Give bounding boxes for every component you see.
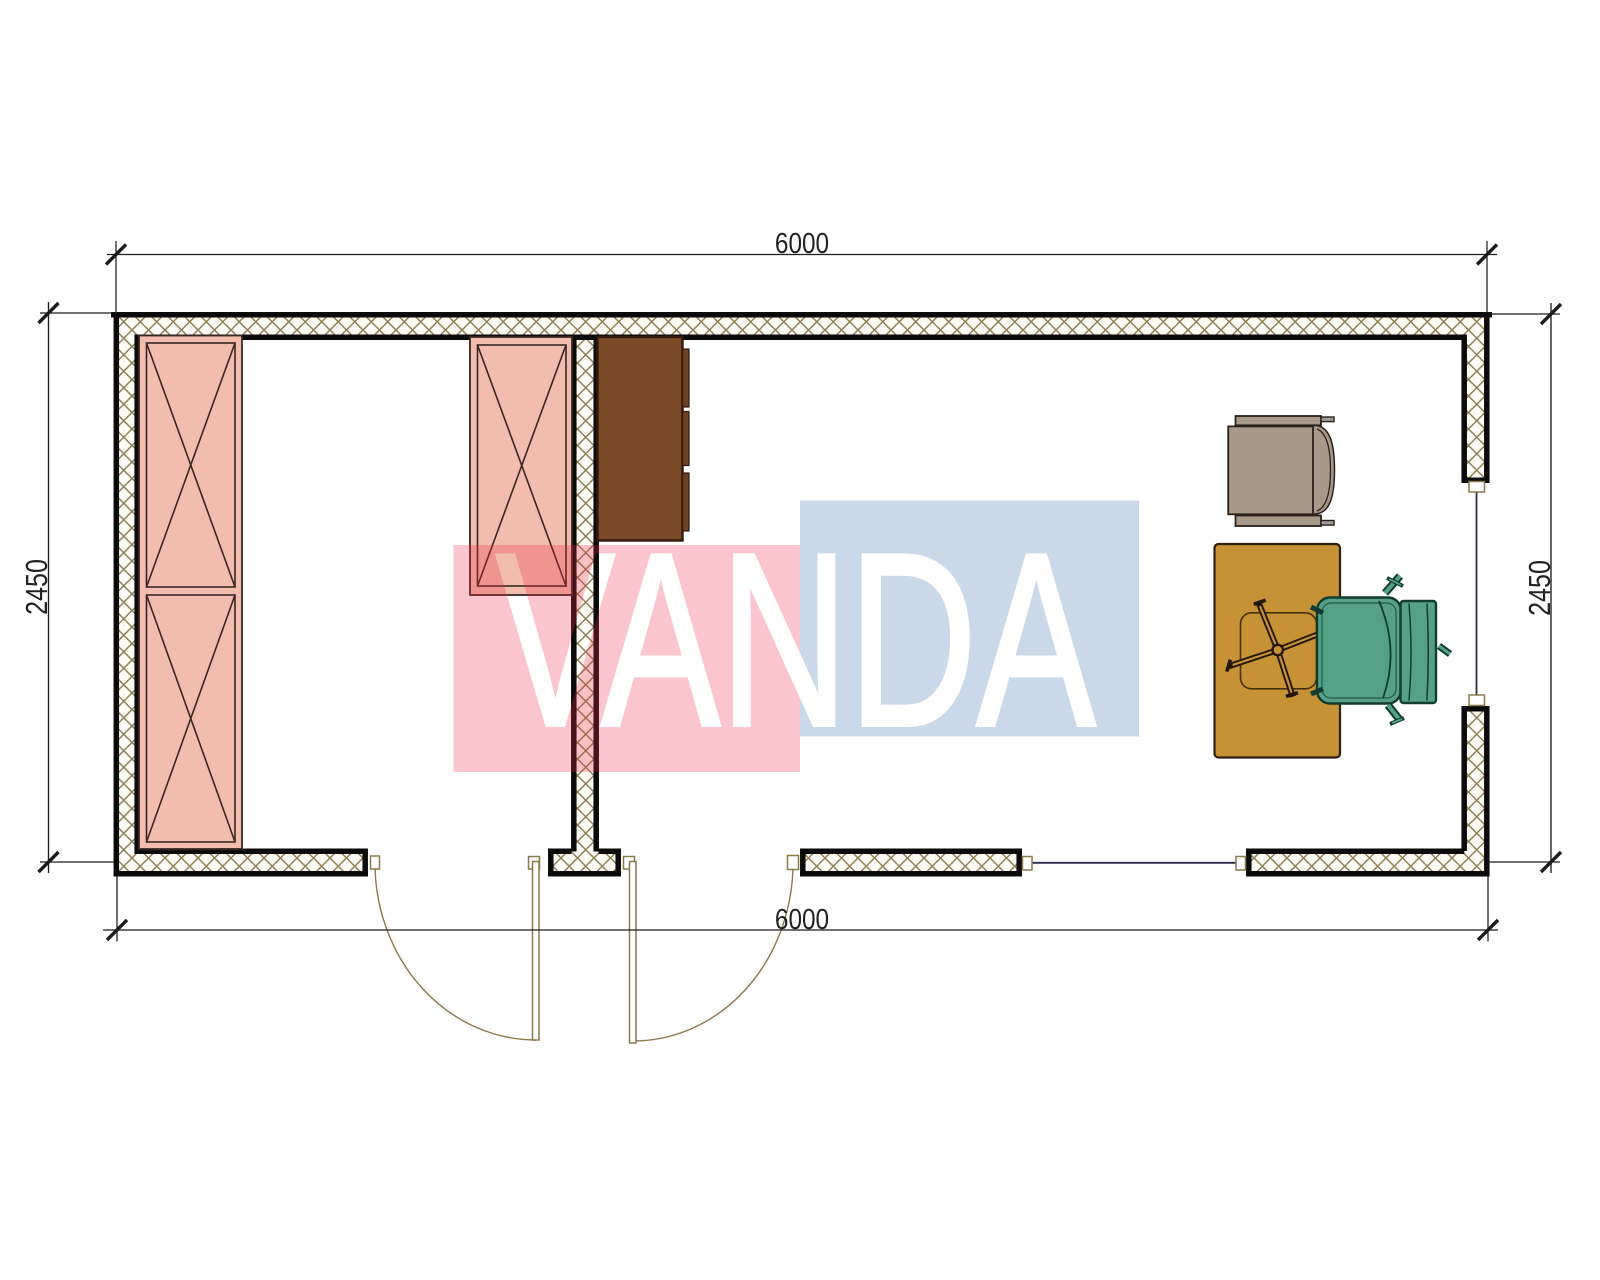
svg-text:6000: 6000 [775,227,829,259]
svg-text:6000: 6000 [775,903,829,935]
svg-text:2450: 2450 [1521,560,1556,616]
svg-text:2450: 2450 [18,559,53,615]
